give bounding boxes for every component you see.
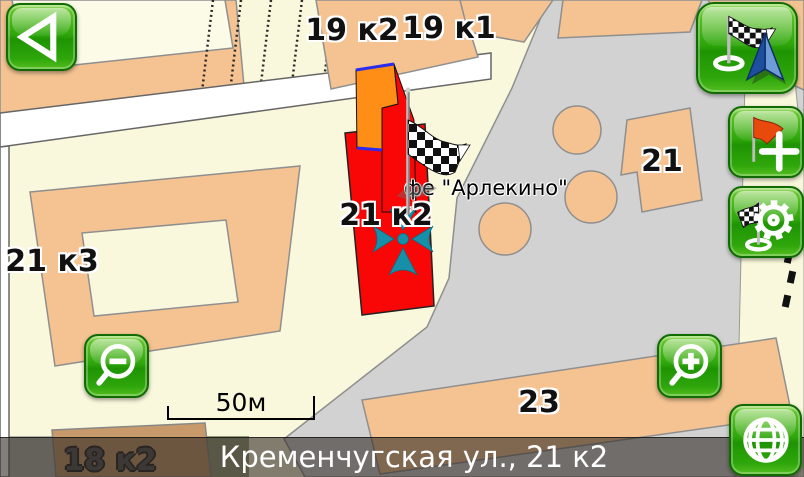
route-options-button[interactable] — [728, 186, 804, 258]
round-structure-2 — [565, 171, 617, 223]
checkered-flag-gear-icon — [730, 188, 802, 256]
scale-bar: 50м — [158, 390, 324, 424]
cursor-arrow-bottom — [389, 248, 417, 275]
label-building-23: 23 — [518, 388, 560, 418]
checkered-flag-cloth — [408, 120, 466, 175]
checkered-flag-with-navigation-arrow-icon — [698, 4, 796, 92]
finish-flag-marker[interactable] — [385, 84, 485, 219]
magnifier-plus-icon — [659, 336, 720, 396]
label-building-21: 21 — [641, 147, 683, 177]
zoom-in-button[interactable] — [657, 334, 722, 398]
label-building-19k2: 19 к2 — [305, 16, 398, 46]
red-flag-plus-icon — [730, 108, 802, 176]
map-view-button[interactable] — [729, 404, 802, 476]
building-top-center-right — [558, 0, 702, 38]
add-waypoint-button[interactable] — [728, 106, 804, 178]
magnifier-minus-icon — [86, 336, 147, 396]
scale-bar-bracket — [168, 396, 314, 419]
back-button[interactable] — [6, 3, 77, 71]
flag-pole-top — [406, 88, 411, 93]
round-structure-1 — [553, 106, 601, 154]
route-finish-button[interactable] — [696, 2, 798, 94]
building-21k3-courtyard — [82, 220, 238, 316]
label-building-19k1: 19 к1 — [402, 14, 495, 44]
address-text: Кременчугская ул., 21 к2 — [196, 443, 608, 472]
label-building-21k3: 21 к3 — [5, 247, 98, 277]
flag-shadow — [397, 185, 437, 199]
round-structure-3 — [479, 203, 531, 255]
globe-icon — [731, 406, 800, 474]
flag-tip — [458, 145, 470, 161]
road-left-edge — [0, 146, 9, 477]
back-arrow-icon — [8, 5, 75, 69]
cursor-center-dot — [398, 234, 409, 245]
address-bar[interactable]: Кременчугская ул., 21 к2 — [0, 437, 804, 477]
zoom-out-button[interactable] — [84, 334, 149, 398]
navigation-map-screen: 19 к2 19 к1 21 21 к2 21 к3 23 18 к2 фе "… — [0, 0, 804, 477]
